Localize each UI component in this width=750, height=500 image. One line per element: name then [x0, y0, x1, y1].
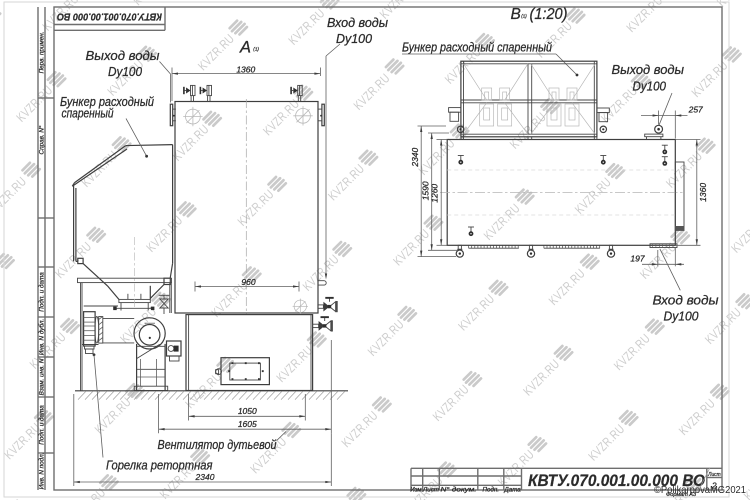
svg-text:Лист: Лист [422, 486, 439, 493]
svg-text:960: 960 [241, 277, 255, 287]
svg-text:N° докум.: N° докум. [441, 486, 477, 493]
svg-text:Перв. примен.: Перв. примен. [39, 32, 46, 74]
svg-text:Вход воды: Вход воды [327, 15, 388, 30]
svg-text:спаренный: спаренный [62, 107, 114, 121]
svg-text:Dy100: Dy100 [633, 79, 667, 94]
svg-text:Dy100: Dy100 [664, 309, 700, 324]
svg-text:(1:20): (1:20) [530, 6, 568, 23]
svg-text:Подп. и дата: Подп. и дата [38, 272, 46, 312]
svg-text:Инв. N дубл.: Инв. N дубл. [38, 319, 46, 355]
svg-text:А: А [239, 39, 251, 57]
svg-text:Изм.: Изм. [410, 486, 423, 493]
svg-text:Бункер расходный спаренный: Бункер расходный спаренный [402, 41, 552, 55]
svg-text:1050: 1050 [238, 406, 257, 416]
svg-text:1360: 1360 [698, 183, 708, 202]
svg-text:Dy100: Dy100 [336, 31, 373, 46]
svg-text:Справ. N°: Справ. N° [38, 125, 46, 154]
svg-text:Вход воды: Вход воды [653, 293, 719, 308]
svg-text:Горелка ретортная: Горелка ретортная [106, 458, 213, 472]
svg-text:197: 197 [630, 253, 644, 263]
svg-text:Подп.: Подп. [483, 486, 499, 493]
svg-text:©PolikarpovaMG2021: ©PolikarpovaMG2021 [654, 485, 746, 496]
svg-text:Лист: Лист [707, 472, 720, 478]
svg-text:В: В [511, 6, 521, 23]
svg-text:Выход воды: Выход воды [612, 62, 685, 77]
svg-text:(1): (1) [521, 14, 527, 19]
svg-text:Взам. инв. N: Взам. инв. N [39, 358, 46, 395]
svg-text:1260: 1260 [430, 184, 440, 203]
svg-text:(1): (1) [253, 46, 259, 51]
svg-text:Дата: Дата [503, 486, 521, 493]
svg-text:1360: 1360 [236, 65, 255, 75]
svg-text:Выход воды: Выход воды [86, 48, 160, 63]
svg-text:Вентилятор дутьевой: Вентилятор дутьевой [158, 438, 277, 452]
svg-text:257: 257 [688, 105, 703, 115]
svg-text:2340: 2340 [195, 472, 215, 482]
svg-text:Подп. и дата: Подп. и дата [38, 405, 46, 445]
svg-text:1605: 1605 [238, 419, 257, 429]
svg-text:Инв. N подл.: Инв. N подл. [38, 453, 46, 490]
svg-text:КВТУ.070.001.00.000 ВО: КВТУ.070.001.00.000 ВО [57, 10, 162, 22]
svg-text:2340: 2340 [410, 147, 420, 167]
svg-text:Dy100: Dy100 [108, 64, 143, 79]
